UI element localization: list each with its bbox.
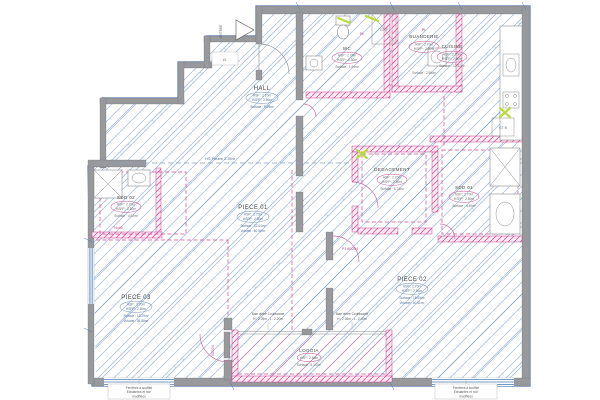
room-loggia: LOGGIA HSP : 2.56m Surface : 5.14 m² (297, 348, 321, 367)
door-exit-label: 90/204 (211, 345, 215, 356)
entry-label: ENTREE (219, 24, 223, 38)
closet-label: PL (360, 32, 364, 36)
room-hsfp: HSFP : 2.50m (252, 98, 272, 102)
room-surface: Surface : 4.45m² (452, 204, 476, 208)
room-surface: Surface : 5.14 m² (297, 363, 321, 367)
room-hsp: HSP : 2.70m (253, 94, 271, 98)
room-hsfp: HSFP : 2.50m (382, 180, 402, 184)
room-surface: Surface : 9.05m² (250, 105, 274, 109)
room-hsfp: HSFP : 2.50m (116, 207, 136, 211)
dim-74x90-label: 74x90 (113, 226, 123, 230)
room-surface: Surface : 1.94m² (335, 65, 359, 69)
window-note-line3: modifiées (132, 394, 146, 398)
window-note-line3: modifiées (459, 394, 473, 398)
room-hsp: HSP : 2.70m (244, 213, 262, 217)
room-hsfp: HSFP : 2.50m (337, 58, 357, 62)
room-name: DEGAGEMENT (374, 167, 410, 172)
room-hsfp: HSFP : 2.50m (442, 57, 462, 61)
room-hsp: HSP : 2.70m (415, 43, 433, 47)
room-hsfp: HSFP : 2.50m (414, 47, 434, 51)
room-surface: Surface : 6.74m² (380, 187, 404, 191)
room-hsfp: HSFP : 2.50m (454, 197, 474, 201)
room-surface: Surface : 4.52m² (114, 214, 138, 218)
room-surface: Surface : 15.05m² (399, 296, 424, 300)
room-name: PIECE 01 (238, 205, 268, 211)
exit-door-leaf (224, 332, 230, 358)
room-name: WC (343, 46, 352, 51)
room-hsp: HSP : 2.70m (383, 176, 401, 180)
room-name: SDD 02 (117, 195, 135, 200)
room-hsp: HSP : 2.70m (403, 285, 421, 289)
room-name: LOGGIA (299, 348, 319, 353)
room-hsp: HSP : 2.56m (300, 356, 318, 360)
room-name: PIECE 03 (121, 295, 151, 301)
unit-tag: #1. (223, 58, 228, 62)
bay-right-dim: H : 2.05m - L : 2.20m (337, 317, 367, 321)
duct-gtp-label: GT P (380, 28, 388, 32)
room-surface: Surface : 22.04m² (240, 224, 265, 228)
vanity-sdd01-icon (490, 194, 520, 234)
room-name: BUANDERIE (409, 34, 439, 39)
room-name: SDD 01 (455, 185, 473, 190)
room-hsfp: HSFP : 2.50m (126, 307, 146, 311)
duct-gtb-label: GT B (499, 126, 507, 130)
room-hsp: HSP : 2.70m (443, 53, 461, 57)
wc-basin-icon (306, 56, 322, 70)
room-hsp: HSP : 2.70m (127, 303, 145, 307)
floorplan-canvas: ENTREE #1. HALL HSP : 2.70m HSFP : 2.50m… (0, 0, 600, 400)
room-hsp: HSP : 2.70m (338, 54, 356, 58)
floorplan-drawing: ENTREE #1. HALL HSP : 2.70m HSFP : 2.50m… (0, 0, 600, 400)
bay-left-label: Baie vitrée Coulissante (252, 312, 285, 316)
sink-sdd02-icon (128, 170, 150, 186)
bay-left-dim: H : 2.05m - L : 2.20m (253, 317, 283, 321)
room-name: HALL (254, 86, 271, 92)
room-volume: Volume : 35.88m³ (124, 319, 149, 323)
kitchen-counter (500, 26, 522, 140)
beam-label: HS Poutre 2.35m (205, 156, 235, 161)
room-surface: Surface : 2.99m² (412, 71, 436, 75)
door-p1-label: P1 60/204 (342, 247, 358, 251)
room-surface: Surface : 13.29m² (123, 314, 148, 318)
room-hsp: HSP : 2.70m (117, 203, 135, 207)
room-hsfp: HSFP : 2.50m (402, 289, 422, 293)
room-volume: Volume : 40.51m³ (400, 301, 425, 305)
room-name: CUISINE (442, 44, 463, 49)
room-hsp: HSP : 2.70m (455, 193, 473, 197)
room-hsfp: HSFP : 2.50m (243, 217, 263, 221)
bay-right-label: Baie vitrée Coulissante (336, 312, 369, 316)
room-surface: Surface : 12.51m² (439, 64, 464, 68)
closet-label: PL (422, 28, 426, 32)
room-volume: Volume : 60.50m³ (241, 229, 266, 233)
room-name: PIECE 02 (397, 277, 427, 283)
